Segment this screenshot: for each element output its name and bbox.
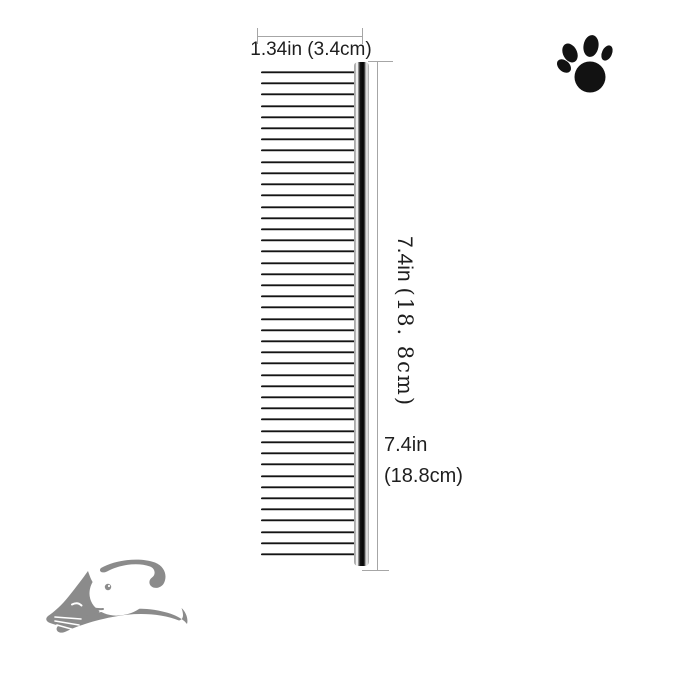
height-label-inches: 7.4in	[384, 430, 463, 461]
comb-tooth	[261, 407, 355, 410]
height-label-cm: (18.8cm)	[384, 461, 463, 492]
height-dimension-side-label: 7.4in(18. 8cm)	[392, 236, 417, 407]
comb-tooth	[261, 273, 355, 276]
comb-tooth	[261, 262, 355, 265]
comb-tooth	[261, 542, 355, 545]
comb-tooth	[261, 183, 355, 186]
height-dimension-top-tick	[368, 61, 393, 62]
comb-tooth	[261, 531, 355, 534]
comb-tooth	[261, 116, 355, 119]
comb-tooth	[261, 553, 355, 556]
comb-tooth	[261, 306, 355, 309]
comb-tooth	[261, 138, 355, 141]
comb-tooth	[261, 362, 355, 365]
comb-tooth	[261, 508, 355, 511]
comb-tooth	[261, 295, 355, 298]
comb-tooth	[261, 161, 355, 164]
height-dimension-bottom-tick	[362, 570, 389, 571]
product-size-diagram: 1.34in (3.4cm) 7.4in(18. 8cm) 7.4in (18.…	[0, 0, 679, 679]
comb-tooth	[261, 318, 355, 321]
comb-tooth	[261, 82, 355, 85]
height-side-label-cm: (18. 8cm)	[393, 288, 417, 408]
comb-tooth	[261, 519, 355, 522]
comb-tooth	[261, 329, 355, 332]
comb-tooth	[261, 105, 355, 108]
height-dimension-line	[377, 61, 378, 570]
comb-tooth	[261, 149, 355, 152]
width-dimension-label: 1.34in (3.4cm)	[245, 40, 377, 60]
comb-tooth	[261, 441, 355, 444]
comb-tooth	[261, 486, 355, 489]
comb-tooth	[261, 374, 355, 377]
comb-tooth	[261, 217, 355, 220]
comb-tooth	[261, 206, 355, 209]
comb-spine	[354, 62, 369, 566]
width-dimension-line	[257, 36, 363, 37]
comb-tooth	[261, 194, 355, 197]
comb-tooth	[261, 452, 355, 455]
comb-tooth	[261, 71, 355, 74]
comb-tooth	[261, 172, 355, 175]
comb-tooth	[261, 228, 355, 231]
height-side-label-inches: 7.4in	[393, 236, 416, 282]
comb-tooth	[261, 385, 355, 388]
paw-print-icon	[552, 25, 618, 95]
comb-tooth	[261, 475, 355, 478]
height-dimension-text: 7.4in (18.8cm)	[384, 430, 463, 492]
comb-tooth	[261, 340, 355, 343]
comb-tooth	[261, 284, 355, 287]
comb-tooth	[261, 396, 355, 399]
comb-tooth	[261, 418, 355, 421]
comb-tooth	[261, 497, 355, 500]
comb-tooth	[261, 127, 355, 130]
brand-logo-icon	[44, 556, 192, 640]
comb-tooth	[261, 351, 355, 354]
comb-tooth	[261, 239, 355, 242]
comb-tooth	[261, 93, 355, 96]
comb-tooth	[261, 463, 355, 466]
comb-tooth	[261, 430, 355, 433]
comb-tooth	[261, 250, 355, 253]
